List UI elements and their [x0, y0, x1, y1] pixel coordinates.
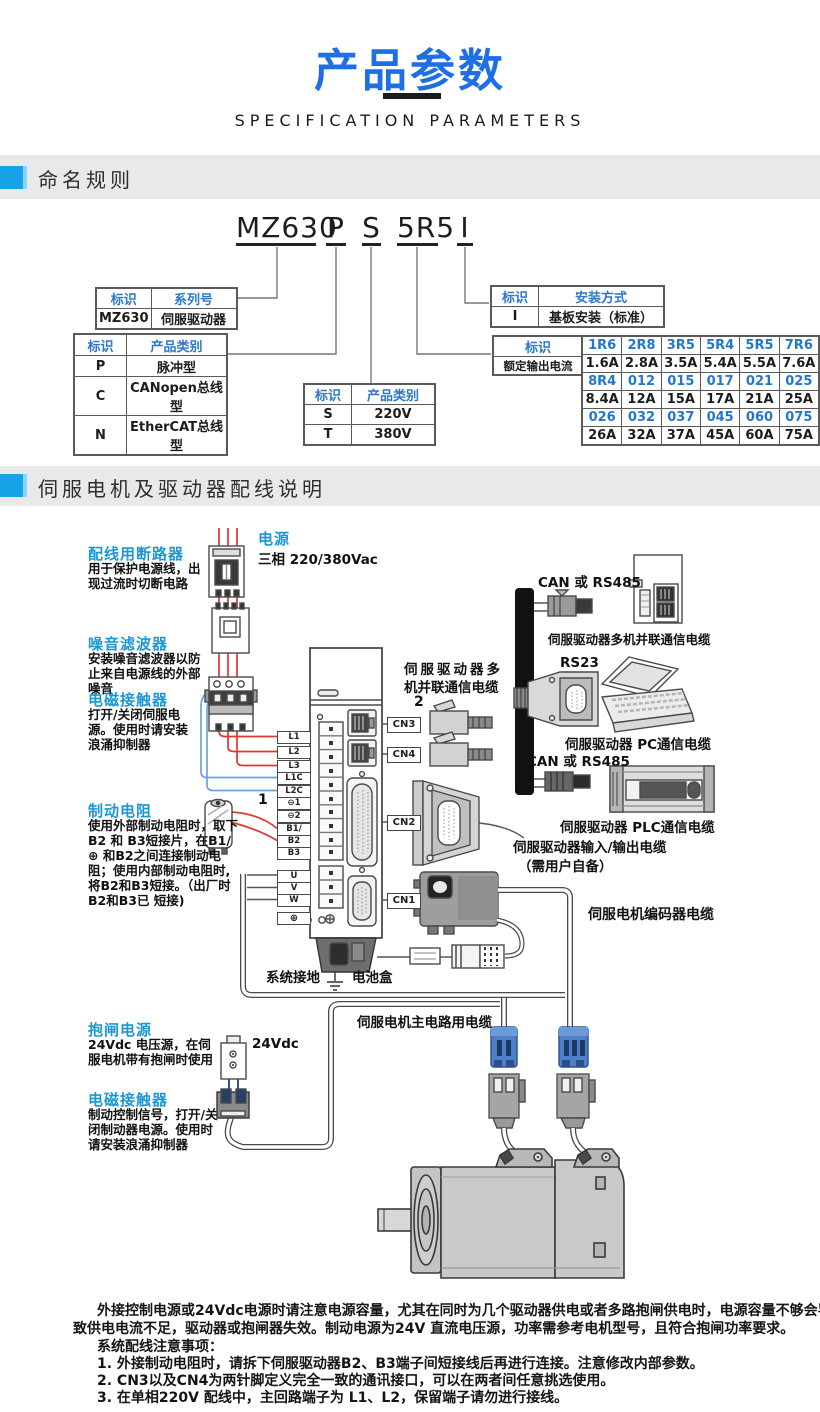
terminal-W: W: [277, 894, 311, 907]
section-band-wiring: 伺服电机及驱动器配线说明: [0, 466, 820, 506]
current-value: 21A: [740, 391, 779, 409]
current-value: 5.5A: [740, 355, 779, 373]
type-cell: CANopen总线型: [127, 377, 228, 416]
magnetic-contactor: [205, 677, 257, 731]
cn1-tag: CN1: [387, 893, 421, 909]
voltage-th-id: 标识: [304, 384, 352, 405]
multi-cable-right-label: 伺服驱动器多机并联通信电缆: [548, 629, 711, 648]
power-label: 电源: [258, 528, 290, 549]
terminal-L2: L2: [277, 746, 311, 759]
multi-cable-left-label-2: 机并联通信电缆: [404, 676, 499, 696]
terminal-B3: B3: [277, 847, 311, 860]
ground-label: 系统接地: [266, 966, 320, 986]
series-cell-code: MZ630: [96, 309, 151, 330]
spec-page: 产品参数 SPECIFICATION PARAMETERS 命名规则 MZ630…: [0, 0, 820, 1412]
voltage-cell: 220V: [352, 405, 436, 425]
can-rs485-bottom-label: CAN 或 RS485: [527, 750, 630, 770]
motor-power-plug-gray: [489, 1074, 525, 1128]
section-title-wiring: 伺服电机及驱动器配线说明: [38, 473, 326, 502]
type-th-name: 产品类别: [127, 334, 228, 356]
current-th-id: 标识: [493, 336, 583, 357]
type-cell: EtherCAT总线型: [127, 416, 228, 456]
current-value: 32A: [622, 427, 661, 446]
section-marker-icon: [0, 474, 27, 497]
current-value: 45A: [700, 427, 739, 446]
current-code: 7R6: [779, 336, 819, 355]
voltage-cell: 380V: [352, 425, 436, 446]
encoder-connector-blue: [559, 1027, 588, 1067]
battery-label: 电池盒: [352, 966, 393, 986]
cn2-tag: CN2: [387, 815, 421, 831]
terminal-PE: ⊕: [277, 912, 311, 925]
series-table: 标识 系列号 MZ630 伺服驱动器: [95, 287, 238, 330]
servo-motor: [378, 1149, 624, 1278]
current-grid-table: 1R62R83R55R45R57R6 1.6A2.8A3.5A5.4A5.5A7…: [581, 335, 820, 446]
encoder-plug-gray: [557, 1074, 595, 1128]
current-value: 3.5A: [661, 355, 700, 373]
current-code: 037: [661, 409, 700, 427]
rj45-plug-cn4: [430, 732, 492, 766]
current-value: 7.6A: [779, 355, 819, 373]
io-connector-cn2: [413, 781, 524, 865]
terminal-L1C: L1C: [277, 772, 311, 785]
cn4-tag: CN4: [387, 747, 421, 763]
type-th-id: 标识: [74, 334, 127, 356]
laptop: [602, 657, 694, 732]
current-code: 017: [700, 373, 739, 391]
series-th-id: 标识: [96, 288, 151, 309]
voltage-th-name: 产品类别: [352, 384, 436, 405]
current-code: 045: [700, 409, 739, 427]
cn3-tag: CN3: [387, 717, 421, 733]
encoder-cable: [498, 890, 570, 1027]
power-desc: 三相 220/380Vac: [258, 548, 378, 568]
current-code: 075: [779, 409, 819, 427]
naming-connector-lines: [221, 247, 491, 383]
current-code: 3R5: [661, 336, 700, 355]
rs23-label: RS23: [560, 655, 599, 671]
current-code: 012: [622, 373, 661, 391]
current-code: 026: [582, 409, 622, 427]
current-value: 8.4A: [582, 391, 622, 409]
brake-power-desc: 24Vdc 电压源，在伺服电机带有抱闸时使用: [88, 1037, 220, 1067]
current-code: 1R6: [582, 336, 622, 355]
noise-filter: [212, 603, 249, 653]
type-table: 标识 产品类别 P脉冲型 CCANopen总线型 NEtherCAT总线型: [73, 333, 228, 456]
brake-power-supply: [221, 1036, 246, 1092]
main-cable-label: 伺服电机主电路用电缆: [357, 1011, 492, 1031]
current-code: 8R4: [582, 373, 622, 391]
multi-drive-plug: [534, 590, 592, 616]
current-code: 060: [740, 409, 779, 427]
servo-drive: [305, 648, 382, 972]
ground-symbol: [327, 972, 343, 990]
current-value: 15A: [661, 391, 700, 409]
motor-power-connector-blue: [491, 1027, 517, 1067]
terminal-dc1: ⊖1: [277, 797, 311, 810]
type-cell: P: [74, 356, 127, 377]
model-code-type: P: [326, 213, 346, 246]
terminal-dc2: ⊖2: [277, 810, 311, 823]
io-cable-label-2: （需用户自备）: [518, 855, 613, 875]
current-code: 025: [779, 373, 819, 391]
current-code: 5R5: [740, 336, 779, 355]
current-code: 021: [740, 373, 779, 391]
voltage-table: 标识 产品类别 S220V T380V: [303, 383, 436, 446]
mounting-cell: I: [491, 307, 539, 328]
current-value: 26A: [582, 427, 622, 446]
model-code-mount: I: [457, 213, 473, 246]
current-value: 1.6A: [582, 355, 622, 373]
current-label: 额定输出电流: [493, 357, 583, 376]
series-th-name: 系列号: [151, 288, 237, 309]
circuit-breaker: [209, 546, 244, 597]
mounting-th-name: 安装方式: [539, 286, 665, 307]
model-code-current: 5R5: [397, 213, 438, 246]
breaker-desc: 用于保护电源线，出现过流时切断电路: [88, 561, 206, 591]
current-value: 75A: [779, 427, 819, 446]
current-value: 17A: [700, 391, 739, 409]
model-code-series: MZ630: [236, 213, 316, 246]
plc-plug: [534, 772, 590, 791]
encoder-connector-cn1: [414, 872, 498, 934]
type-cell: C: [74, 377, 127, 416]
current-code: 5R4: [700, 336, 739, 355]
current-code: 032: [622, 409, 661, 427]
voltage-cell: T: [304, 425, 352, 446]
current-code: 2R8: [622, 336, 661, 355]
mounting-table: 标识 安装方式 I基板安装（标准）: [490, 285, 665, 328]
rj45-plug-cn3: [430, 700, 492, 734]
terminal-L1: L1: [277, 731, 311, 744]
plc-device: [610, 766, 714, 812]
callout-1: 1: [258, 792, 268, 808]
current-value: 25A: [779, 391, 819, 409]
current-value: 60A: [740, 427, 779, 446]
io-cable-label-1: 伺服驱动器输入/输出电缆: [513, 836, 666, 856]
vdc24-label: 24Vdc: [252, 1036, 299, 1052]
can-rs485-top-label: CAN 或 RS485: [538, 571, 641, 591]
type-cell: N: [74, 416, 127, 456]
mounting-th-id: 标识: [491, 286, 539, 307]
mounting-cell: 基板安装（标准）: [539, 307, 665, 328]
model-code-voltage: S: [362, 213, 381, 246]
current-value: 5.4A: [700, 355, 739, 373]
brake-contactor: [217, 1089, 249, 1118]
series-cell-name: 伺服驱动器: [151, 309, 237, 330]
contactor-desc: 打开/关闭伺服电源。使用时请安装浪涌抑制器: [88, 707, 200, 752]
current-value: 37A: [661, 427, 700, 446]
callout-2: 2: [414, 694, 424, 710]
current-label-table: 标识 额定输出电流: [492, 335, 584, 376]
plc-cable-label: 伺服驱动器 PLC通信电缆: [560, 816, 715, 836]
brake-contactor-desc: 制动控制信号，打开/关闭制动器电源。使用时请安装浪涌抑制器: [88, 1107, 220, 1152]
encoder-cable-label: 伺服电机编码器电缆: [588, 904, 714, 924]
current-value: 2.8A: [622, 355, 661, 373]
multi-cable-left-label-1: 伺服驱动器多: [404, 658, 503, 678]
resistor-desc: 使用外部制动电阻时，取下 B2 和 B3短接片，在B1/⊕ 和B2之间连接制动电…: [88, 818, 238, 908]
current-value: 12A: [622, 391, 661, 409]
voltage-cell: S: [304, 405, 352, 425]
type-cell: 脉冲型: [127, 356, 228, 377]
current-code: 015: [661, 373, 700, 391]
